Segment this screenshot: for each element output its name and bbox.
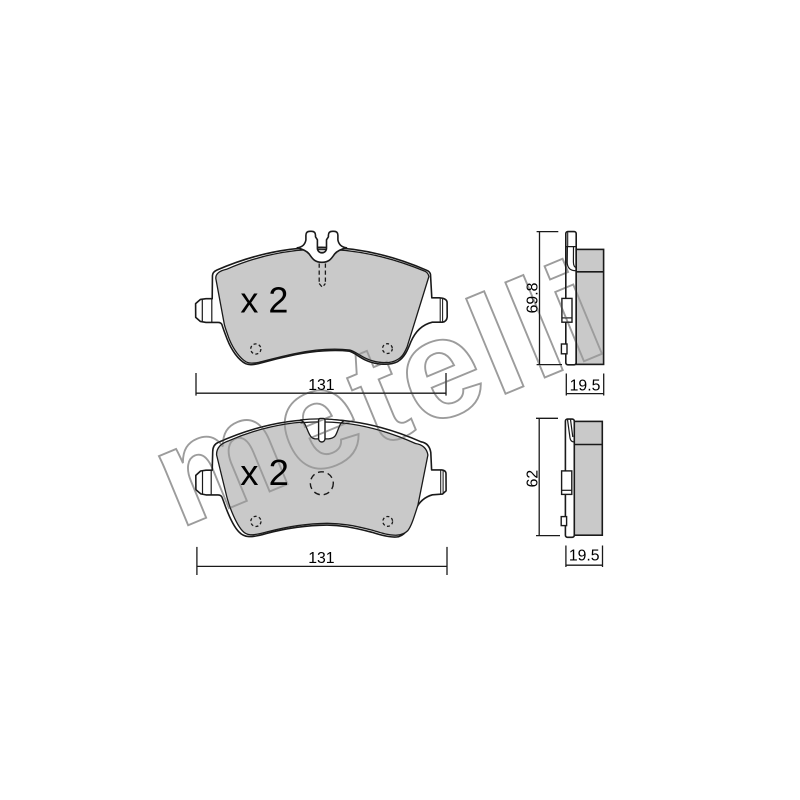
svg-text:62: 62 (524, 470, 541, 488)
svg-text:x 2: x 2 (240, 280, 288, 321)
svg-text:131: 131 (308, 550, 335, 567)
svg-text:19.5: 19.5 (569, 548, 600, 565)
